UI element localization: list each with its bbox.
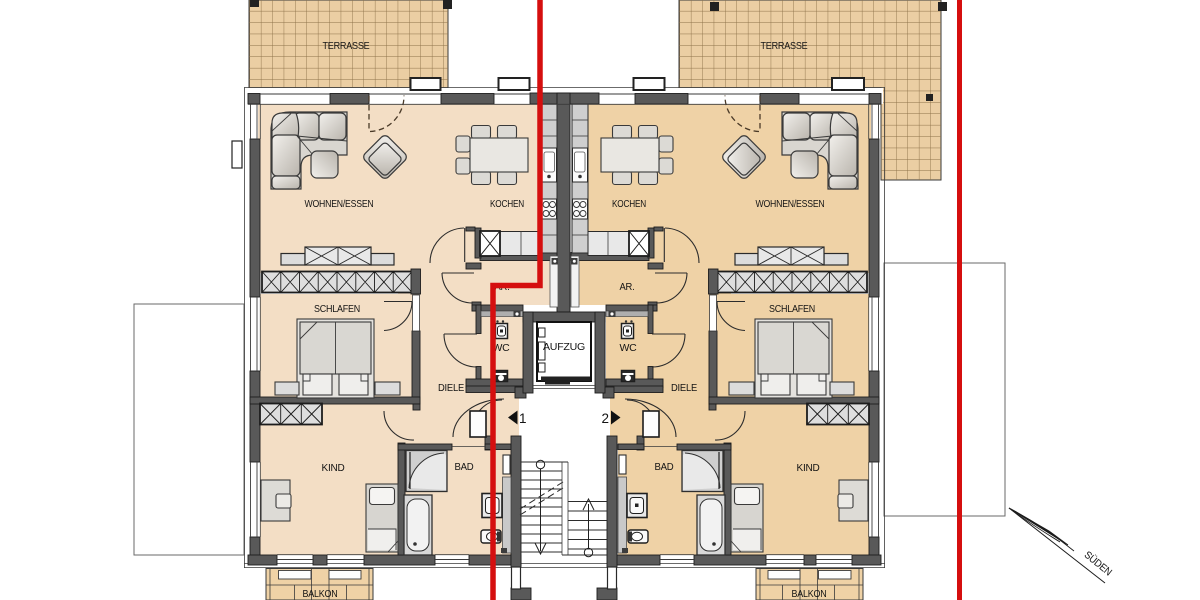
svg-text:DIELE: DIELE xyxy=(671,383,697,394)
svg-text:KOCHEN: KOCHEN xyxy=(612,199,646,210)
svg-text:SCHLAFEN: SCHLAFEN xyxy=(769,304,815,315)
svg-text:BAD: BAD xyxy=(655,462,674,473)
svg-text:1: 1 xyxy=(519,411,527,426)
svg-text:KIND: KIND xyxy=(797,463,820,474)
svg-text:BALKON: BALKON xyxy=(303,589,338,600)
svg-text:2: 2 xyxy=(601,411,609,426)
svg-text:BALKON: BALKON xyxy=(792,589,827,600)
svg-text:WOHNEN/ESSEN: WOHNEN/ESSEN xyxy=(305,199,374,210)
svg-text:SCHLAFEN: SCHLAFEN xyxy=(314,304,360,315)
svg-text:TERRASSE: TERRASSE xyxy=(323,41,370,52)
svg-text:TERRASSE: TERRASSE xyxy=(761,41,808,52)
svg-text:AR.: AR. xyxy=(620,282,635,293)
svg-text:WC: WC xyxy=(620,343,638,354)
svg-text:BAD: BAD xyxy=(455,462,474,473)
svg-text:DIELE: DIELE xyxy=(438,383,464,394)
svg-text:AUFZUG: AUFZUG xyxy=(543,342,585,353)
svg-text:KOCHEN: KOCHEN xyxy=(490,199,524,210)
svg-text:KIND: KIND xyxy=(322,463,345,474)
svg-text:WOHNEN/ESSEN: WOHNEN/ESSEN xyxy=(756,199,825,210)
